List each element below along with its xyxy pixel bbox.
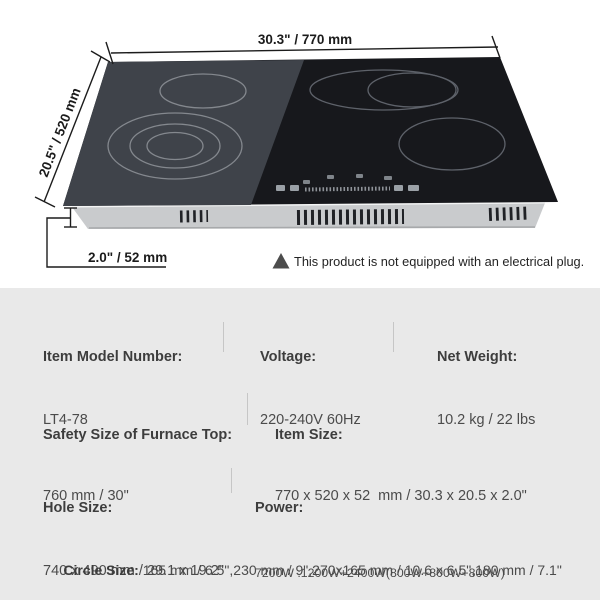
spec-label: Voltage: xyxy=(260,349,361,366)
spec-value: 165 mm / 6.5",230 mm / 9",270x165 mm / 1… xyxy=(139,562,562,578)
product-spec-image: 30.3" / 770 mm 20.5" / 520 mm 2.0" / 52 … xyxy=(0,0,600,600)
spec-sheet: Item Model Number: LT4-78 Voltage: 220-2… xyxy=(0,288,600,600)
depth-dimension-tick-top xyxy=(91,51,110,62)
boost-key-icon xyxy=(408,185,419,191)
zone-select-icon-4 xyxy=(384,176,392,180)
spec-divider xyxy=(247,393,248,425)
warning-triangle-icon xyxy=(273,253,290,269)
zone-select-icon-1 xyxy=(303,180,310,184)
zone-select-icon-2 xyxy=(327,175,334,179)
zone-select-icon-3 xyxy=(356,174,363,178)
height-dimension-label: 2.0" / 52 mm xyxy=(88,250,167,265)
glass-surface xyxy=(63,57,558,206)
spec-label: Circle Size: xyxy=(63,562,138,578)
spec-circle-size: Circle Size: 165 mm / 6.5",230 mm / 9",2… xyxy=(40,546,562,594)
width-dimension-line xyxy=(111,47,498,53)
spec-label: Item Model Number: xyxy=(43,349,182,366)
base-shadow-edge xyxy=(89,227,535,228)
warning-note: This product is not equipped with an ele… xyxy=(273,253,585,269)
lock-key-icon xyxy=(290,185,299,191)
spec-label: Item Size: xyxy=(275,427,527,444)
spec-label: Power: xyxy=(255,500,505,517)
spec-label: Safety Size of Furnace Top: xyxy=(43,427,232,444)
warning-text: This product is not equipped with an ele… xyxy=(294,254,584,269)
cooktop-base xyxy=(72,203,545,230)
spec-divider xyxy=(393,322,394,352)
spec-label: Net Weight: xyxy=(437,349,535,366)
spec-label: Hole Size: xyxy=(43,500,224,517)
width-dimension-label: 30.3" / 770 mm xyxy=(258,32,352,47)
spec-divider xyxy=(223,322,224,352)
timer-key-icon xyxy=(394,185,403,191)
power-key-icon xyxy=(276,185,285,191)
spec-divider xyxy=(231,468,232,493)
cooktop-illustration: 30.3" / 770 mm 20.5" / 520 mm 2.0" / 52 … xyxy=(0,0,600,288)
